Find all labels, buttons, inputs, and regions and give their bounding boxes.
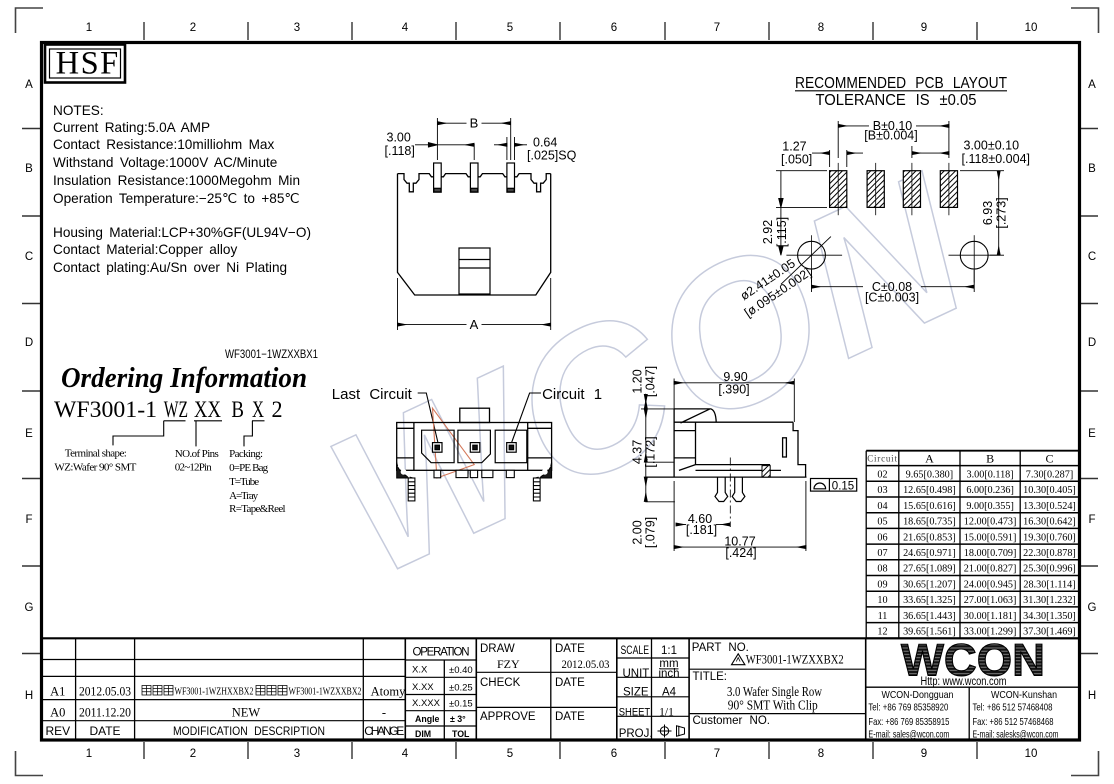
svg-text:[.025]SQ: [.025]SQ [527,149,577,163]
svg-text:7: 7 [714,748,720,760]
svg-text:36.65[1.443]: 36.65[1.443] [903,611,956,622]
svg-text:Circuit: Circuit [867,454,898,464]
svg-text:1: 1 [86,22,92,34]
svg-text:E: E [1088,428,1096,440]
svg-text:Packing:: Packing: [229,448,263,460]
svg-text:SIZE: SIZE [623,687,649,699]
svg-text:Circuit 1: Circuit 1 [542,386,602,403]
svg-text:19.30[0.760]: 19.30[0.760] [1023,532,1076,543]
svg-text:6: 6 [611,22,617,34]
svg-text:10: 10 [1025,748,1038,760]
svg-text:WF3001-1WZXXBX2: WF3001-1WZXXBX2 [289,687,362,698]
svg-text:X.XXX: X.XXX [412,698,441,709]
svg-text:H: H [25,690,33,702]
svg-text:F: F [25,514,32,526]
svg-text:NO.of Pins: NO.of Pins [175,448,219,460]
svg-text:WF3001−1WZXXBX1: WF3001−1WZXXBX1 [225,349,318,361]
svg-text:X: X [252,397,264,422]
svg-text:RECOMMENDED PCB LAYOUT: RECOMMENDED PCB LAYOUT [795,75,1007,92]
svg-text:WCON-Kunshan: WCON-Kunshan [991,690,1057,701]
svg-text:6: 6 [611,748,617,760]
svg-text:D: D [25,337,33,349]
svg-text:22.30[0.878]: 22.30[0.878] [1023,548,1076,559]
svg-text:03: 03 [877,485,887,496]
svg-text:Fax: +86 512 57468468: Fax: +86 512 57468468 [973,717,1054,728]
svg-text:4: 4 [402,22,409,34]
svg-text:HSF: HSF [56,46,120,82]
svg-text:6.93: 6.93 [981,201,995,225]
svg-text:± 3°: ± 3° [450,714,466,724]
svg-text:1.27: 1.27 [782,140,806,154]
svg-text:NOTES:: NOTES: [53,103,104,118]
svg-text:24.00[0.945]: 24.00[0.945] [964,579,1017,590]
svg-text:REV: REV [45,724,70,738]
svg-text:07: 07 [877,548,887,559]
svg-text:28.30[1.114]: 28.30[1.114] [1023,579,1075,590]
svg-text:27.65[1.089]: 27.65[1.089] [903,564,956,575]
svg-text:06: 06 [877,532,887,543]
svg-text:X.XX: X.XX [412,682,434,693]
svg-text:9: 9 [921,748,927,760]
svg-text:A0: A0 [50,706,65,720]
svg-text:B: B [231,396,244,422]
svg-text:XX: XX [194,396,221,422]
svg-text:A1: A1 [50,685,65,699]
svg-text:H: H [1088,690,1096,702]
svg-text:DIM: DIM [415,729,431,739]
svg-text:E: E [25,428,33,440]
svg-text:[.181]: [.181] [686,523,717,537]
svg-text:1/1: 1/1 [659,707,674,719]
svg-text:Terminal shape:: Terminal shape: [65,448,127,460]
svg-text:WF3001-1WZHXXBX2: WF3001-1WZHXXBX2 [175,687,254,698]
svg-text:E-mail: salesks@wcon.com: E-mail: salesks@wcon.com [973,729,1059,740]
svg-text:SHEET: SHEET [619,707,651,719]
svg-text:B: B [470,116,479,131]
svg-text:WCON-Dongguan: WCON-Dongguan [882,690,954,701]
svg-text:1.20: 1.20 [631,369,645,393]
svg-text:DATE: DATE [555,711,585,723]
svg-text:R=Tape&Reel: R=Tape&Reel [229,503,286,515]
svg-text:18.65[0.735]: 18.65[0.735] [903,517,956,528]
svg-text:X.X: X.X [412,665,428,676]
svg-text:3.00[0.118]: 3.00[0.118] [967,470,1014,481]
svg-text:[.273]: [.273] [995,197,1009,228]
svg-text:30.00[1.181]: 30.00[1.181] [964,611,1017,622]
svg-text:APPROVE: APPROVE [480,711,536,723]
svg-text:4.37: 4.37 [631,440,645,464]
svg-text:WZ: WZ [164,397,188,423]
svg-text:UNIT: UNIT [623,668,650,680]
svg-text:MODIFICATION DESCRIPTION: MODIFICATION DESCRIPTION [173,724,325,738]
svg-text:E-mail: sales@wcon.com: E-mail: sales@wcon.com [868,729,949,740]
svg-text:33.65[1.325]: 33.65[1.325] [903,595,956,606]
svg-text:Fax: +86 769 85358915: Fax: +86 769 85358915 [868,717,949,728]
svg-text:9.00[0.355]: 9.00[0.355] [966,501,1014,512]
svg-text:Contact plating:Au/Sn over: Contact plating:Au/Sn over Ni Plating [53,260,287,275]
svg-text:C: C [25,251,33,263]
svg-text:OPERATION: OPERATION [413,647,470,659]
svg-text:7: 7 [714,22,720,34]
svg-text:Operation Temperature:−25℃ t: Operation Temperature:−25℃ to +85℃ [53,191,300,206]
svg-text:DATE: DATE [555,643,585,655]
svg-text:31.30[1.232]: 31.30[1.232] [1023,595,1076,606]
svg-text:B: B [25,163,33,175]
svg-text:27.00[1.063]: 27.00[1.063] [964,595,1017,606]
svg-text:NEW: NEW [232,706,261,720]
svg-text:21.00[0.827]: 21.00[0.827] [964,564,1017,575]
svg-text:TOLERANCE IS ±0.05: TOLERANCE IS ±0.05 [816,92,977,109]
svg-text:1:1: 1:1 [661,645,677,657]
svg-text:2012.05.03: 2012.05.03 [562,657,610,671]
svg-text:0.15: 0.15 [832,480,854,492]
svg-text:Contact Material:Copper allo: Contact Material:Copper alloy [53,242,237,257]
svg-text:2012.05.03: 2012.05.03 [79,685,131,699]
svg-text:F: F [1088,514,1095,526]
svg-text:2011.12.20: 2011.12.20 [79,706,131,720]
svg-text:15.65[0.616]: 15.65[0.616] [903,501,956,512]
svg-text:0=PE Bag: 0=PE Bag [229,462,269,474]
svg-text:02~12Pin: 02~12Pin [175,462,213,474]
svg-text:21.65[0.853]: 21.65[0.853] [903,532,956,543]
svg-text:04: 04 [877,501,887,512]
svg-text:12: 12 [877,627,887,638]
svg-text:2: 2 [190,748,196,760]
svg-text:±0.15: ±0.15 [449,699,473,710]
svg-text:12.00[0.473]: 12.00[0.473] [964,517,1017,528]
svg-text:08: 08 [877,564,887,575]
svg-text:9: 9 [921,22,927,34]
svg-text:1: 1 [86,748,92,760]
svg-text:DRAW: DRAW [480,643,515,655]
svg-text:CHECK: CHECK [480,677,521,689]
svg-text:Angle: Angle [415,714,440,724]
svg-text:G: G [1088,602,1097,614]
svg-text:[.079]: [.079] [644,517,658,548]
svg-text:[.390]: [.390] [718,383,749,397]
svg-text:15.00[0.591]: 15.00[0.591] [964,532,1017,543]
svg-text:25.30[0.996]: 25.30[0.996] [1023,564,1076,575]
svg-text:C: C [1045,452,1053,466]
svg-text:PART NO.: PART NO. [692,642,749,654]
svg-text:90° SMT With Clip: 90° SMT With Clip [728,697,818,712]
svg-text:[.118]: [.118] [385,144,415,158]
svg-text:T=Tube: T=Tube [229,476,259,488]
svg-text:A: A [470,317,479,332]
svg-text:3: 3 [294,22,300,34]
svg-text:DATE: DATE [89,724,120,738]
svg-text:DATE: DATE [555,677,585,689]
svg-text:8: 8 [818,748,824,760]
svg-text:±0.40: ±0.40 [449,665,473,676]
svg-text:PROJ.: PROJ. [619,728,653,740]
svg-text:9.65[0.380]: 9.65[0.380] [906,470,954,481]
svg-text:A: A [1088,79,1096,91]
svg-text:[.172]: [.172] [644,436,658,467]
svg-text:2.92: 2.92 [761,220,775,244]
svg-text:2: 2 [190,22,196,34]
svg-text:[.118±0.004]: [.118±0.004] [962,152,1031,166]
svg-text:Housing Material:LCP+30%GF(UL: Housing Material:LCP+30%GF(UL94V−O) [53,225,311,240]
svg-text:Withstand Voltage:1000V AC/M: Withstand Voltage:1000V AC/Minute [53,155,277,170]
svg-text:WF3001-1WZXXBX2: WF3001-1WZXXBX2 [746,652,844,667]
svg-text:G: G [25,602,34,614]
svg-text:10.30[0.405]: 10.30[0.405] [1023,485,1076,496]
svg-text:Current Rating:5.0A AMP: Current Rating:5.0A AMP [53,120,210,135]
svg-text:A=Tray: A=Tray [229,490,259,502]
svg-text:A4: A4 [662,687,677,699]
svg-text:CHANGE: CHANGE [364,724,404,738]
svg-text:10: 10 [1025,22,1038,34]
svg-text:C: C [1088,251,1096,263]
svg-text:11: 11 [878,611,888,622]
svg-text:SCALE: SCALE [621,645,650,657]
svg-text:Contact Resistance:10milliohm: Contact Resistance:10milliohm Max [53,137,274,152]
svg-text:5: 5 [507,748,513,760]
svg-text:0.64: 0.64 [533,136,557,150]
svg-text:12.65[0.498]: 12.65[0.498] [903,485,956,496]
svg-text:B: B [1088,163,1096,175]
svg-text:30.65[1.207]: 30.65[1.207] [903,579,956,590]
svg-text:6.00[0.236]: 6.00[0.236] [966,485,1014,496]
svg-text:[.050]: [.050] [781,153,812,167]
svg-text:[.424]: [.424] [725,546,756,560]
svg-text:8: 8 [818,22,824,34]
svg-text:A: A [25,79,33,91]
svg-text:inch: inch [658,668,679,680]
svg-text:±0.25: ±0.25 [449,682,473,693]
svg-text:A: A [925,452,934,466]
svg-text:3: 3 [294,748,300,760]
svg-text:Customer NO.: Customer NO. [693,715,771,727]
svg-text:[.115]: [.115] [775,217,789,247]
svg-text:[.047]: [.047] [644,366,658,397]
svg-text:TOL: TOL [452,729,470,739]
svg-text:3.00: 3.00 [387,131,411,145]
svg-text:D: D [1088,337,1096,349]
svg-text:Http: www.wcon.com: Http: www.wcon.com [921,676,1007,688]
svg-text:16.30[0.642]: 16.30[0.642] [1023,517,1076,528]
svg-text:FZY: FZY [497,657,520,671]
svg-text:-: - [382,706,386,720]
svg-text:02: 02 [877,470,887,481]
svg-text:05: 05 [877,517,887,528]
svg-text:Insulation Resistance:1000Meg: Insulation Resistance:1000Megohm Min [53,173,300,188]
svg-text:13.30[0.524]: 13.30[0.524] [1023,501,1076,512]
svg-text:TITLE:: TITLE: [693,671,728,683]
svg-text:Atomy: Atomy [371,685,406,699]
svg-text:18.00[0.709]: 18.00[0.709] [964,548,1017,559]
svg-text:Last Circuit: Last Circuit [332,386,413,403]
svg-text:WZ:Wafer 90° SMT: WZ:Wafer 90° SMT [54,461,136,473]
svg-text:5: 5 [507,22,513,34]
svg-text:2: 2 [272,397,283,423]
svg-text:2.00: 2.00 [631,520,645,544]
svg-text:3.00±0.10: 3.00±0.10 [964,139,1020,153]
svg-text:[C±0.003]: [C±0.003] [865,291,919,305]
svg-text:WF3001-1: WF3001-1 [54,397,157,422]
svg-text:24.65[0.971]: 24.65[0.971] [903,548,956,559]
svg-text:Tel: +86 512 57468408: Tel: +86 512 57468408 [973,703,1053,714]
svg-text:7.30[0.287]: 7.30[0.287] [1026,470,1074,481]
svg-text:4: 4 [402,748,409,760]
svg-text:B: B [986,452,994,466]
svg-text:Ordering Information: Ordering Information [61,363,307,394]
svg-text:09: 09 [877,579,887,590]
svg-text:Tel: +86 769 85358920: Tel: +86 769 85358920 [868,703,948,714]
svg-text:[B±0.004]: [B±0.004] [864,129,917,143]
svg-text:10: 10 [877,595,887,606]
svg-text:34.30[1.350]: 34.30[1.350] [1023,611,1076,622]
